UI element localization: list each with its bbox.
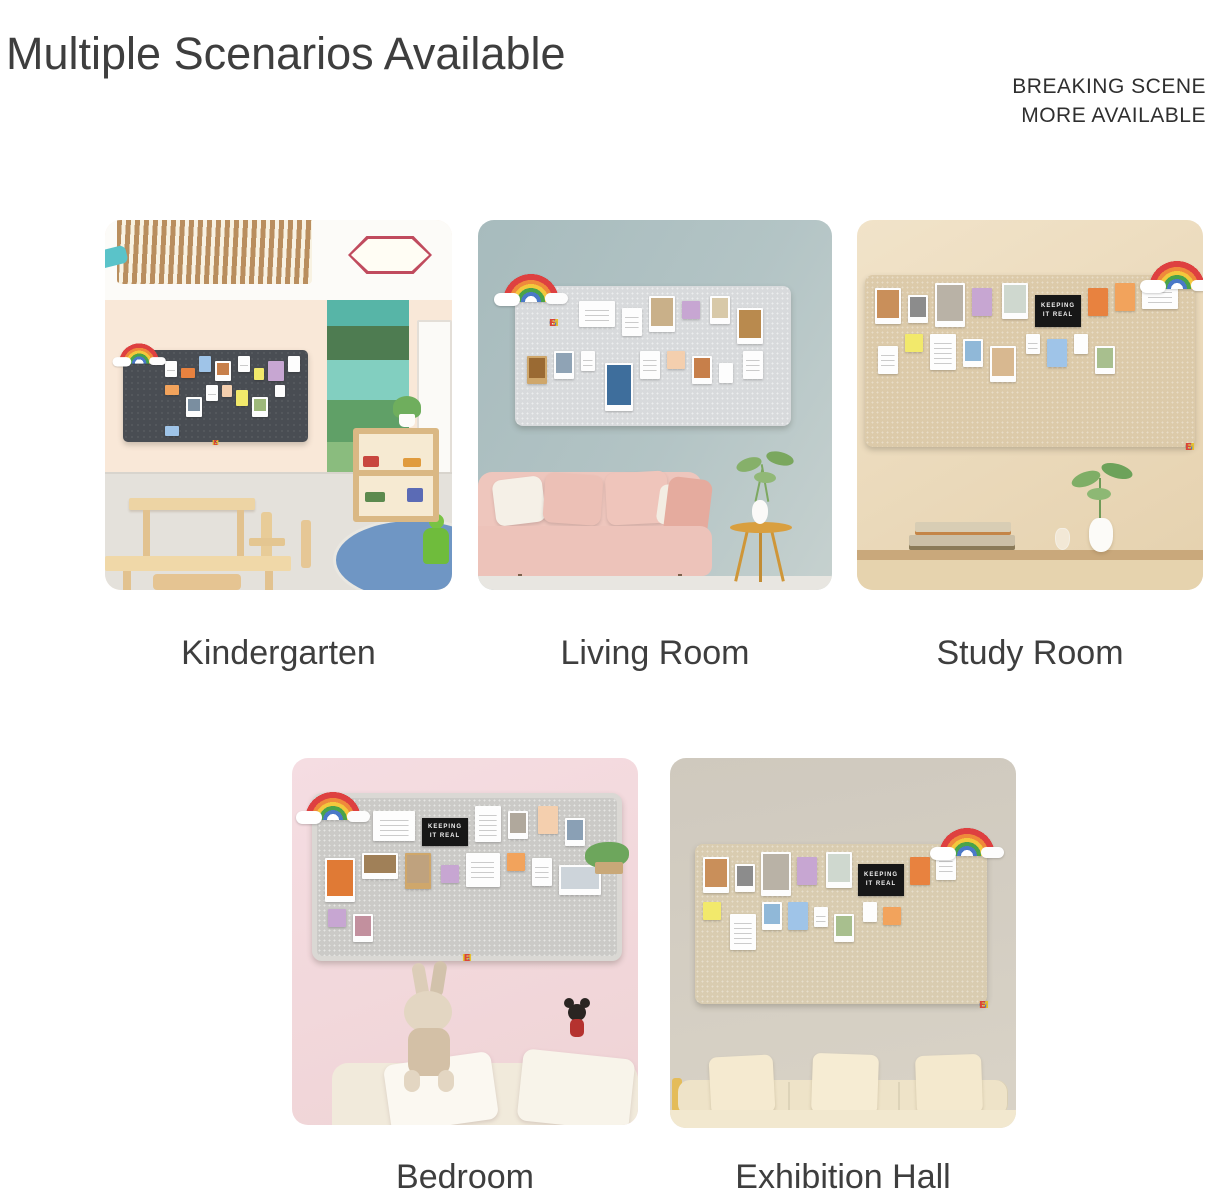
rainbow-icon [305,790,361,820]
pinned-card [990,346,1016,382]
pinned-card [288,356,300,372]
pinned-card [581,351,595,371]
table-leg [123,571,131,590]
home-letter: E [1185,442,1192,453]
pinned-card [238,356,250,372]
pinned-card [910,857,930,885]
pinned-card [703,857,729,893]
pinned-card [1026,334,1040,354]
pinned-card [215,361,231,381]
bunny-plush [438,1070,454,1092]
pinned-card [834,914,854,942]
toy-car-green [365,492,385,502]
plant-leaf [1087,488,1111,500]
pinned-card [206,385,218,401]
pinned-card [199,356,211,372]
pinned-card [930,334,956,370]
mouse-plush [570,1019,584,1037]
vase [1089,518,1113,552]
bunny-plush [404,991,452,1033]
availability-note: BREAKING SCENE MORE AVAILABLE [1012,72,1206,130]
pinned-card [275,385,285,397]
pinned-card [640,351,660,379]
pinned-card [972,288,992,316]
pinned-card [735,864,755,892]
scene-card-study-room: KEEPING IT REAL H O M E [857,220,1203,590]
pinned-card [883,907,901,925]
wood-slat-ceiling [117,220,312,284]
bunny-plush [404,1070,420,1092]
plant-pot [399,414,415,427]
bunny-plush [408,1028,450,1076]
plant-leaf [765,449,795,468]
home-letter: E [464,953,471,964]
pinned-card [1095,346,1115,374]
pinned-card [814,907,828,927]
pinned-card [236,390,248,406]
toy-shelf [353,428,439,522]
rainbow-icon [1149,259,1203,289]
home-letter: E [549,318,556,329]
kids-chair [153,574,241,590]
pinned-card [325,858,355,902]
pinned-card [165,385,179,395]
table-leg [759,532,762,582]
home-letter: E [979,1000,986,1011]
pinned-card [667,351,685,369]
table-leg [265,571,273,590]
pinned-card [353,914,373,942]
desk-top [857,550,1203,560]
pinned-card [826,852,852,888]
felt-pin-board: H O M E [123,350,308,442]
scene-label-living-room: Living Room [478,634,832,673]
pinned-card [328,909,346,927]
pinned-card [743,351,763,379]
pinned-card [554,351,574,379]
keeping-it-real-sign: KEEPING IT REAL [1035,295,1081,327]
pinned-cards-collage [515,286,791,426]
pinned-card [507,853,525,871]
pinned-card [1115,283,1135,311]
pinned-card [863,902,877,922]
sofa-seat [478,526,712,576]
bench-pillow [915,1054,983,1115]
scene-label-bedroom: Bedroom [292,1158,638,1197]
scene-label-exhibition-hall: Exhibition Hall [670,1158,1016,1197]
pinned-card [908,295,928,323]
kids-table [105,556,291,571]
pinned-card [878,346,898,374]
scene-label-study-room: Study Room [857,634,1203,673]
kids-chair [249,538,285,546]
felt-pin-board: H O M E [515,286,791,426]
book [915,522,1011,535]
product-scenarios-image: Multiple Scenarios Available BREAKING SC… [0,0,1225,1200]
scene-card-kindergarten: H O M E [105,220,452,590]
pinned-card [165,426,179,436]
pinned-card [1047,339,1067,367]
pinned-card [254,368,264,380]
bench-pillow [811,1053,879,1115]
toy-figure [423,528,449,564]
pinned-card [737,308,763,344]
pinned-card [222,385,232,397]
sofa-pillow [542,472,603,526]
pinned-card [441,865,459,883]
pinned-card [788,902,808,930]
scene-label-kindergarten: Kindergarten [105,634,452,673]
pinned-card [719,363,733,383]
pinned-card [165,361,177,377]
rainbow-icon [119,342,159,364]
pinned-card [362,853,398,879]
bench-seat [670,1110,1016,1128]
pinned-card [1002,283,1028,319]
pinned-card [1074,334,1088,354]
rainbow-icon [939,826,995,856]
toy-car-orange [403,458,421,467]
scene-card-living-room: H O M E [478,220,832,590]
pinned-card [532,858,552,886]
pinned-cards-collage: KEEPING IT REAL [865,275,1195,447]
pinned-card [475,806,501,842]
kids-table [129,498,255,510]
pinned-card [730,914,756,950]
toy-car-blue [407,488,423,502]
bed-pillow [517,1048,636,1125]
pinned-cards-collage: KEEPING IT REAL [695,844,987,1004]
scene-card-exhibition-hall: KEEPING IT REAL H O M E [670,758,1016,1128]
kids-chair [301,520,311,568]
rainbow-icon [503,272,559,302]
pinned-card [1088,288,1108,316]
desk-front [857,560,1203,590]
availability-note-line1: BREAKING SCENE [1012,72,1206,101]
pinned-card [963,339,983,367]
pinned-card [935,283,965,327]
pinned-card [565,818,585,846]
pinned-card [186,397,202,417]
plant-leaf [1100,460,1135,482]
felt-pin-board: KEEPING IT REAL H O M E [695,844,987,1004]
felt-pin-board: KEEPING IT REAL H O M E [865,275,1195,447]
pinned-card [682,301,700,319]
pinned-card [579,301,615,327]
page-title: Multiple Scenarios Available [6,28,566,80]
pinned-card [508,811,528,839]
pinned-card [373,811,415,841]
pinned-card [538,806,558,834]
availability-note-line2: MORE AVAILABLE [1012,101,1206,130]
pinned-card [762,902,782,930]
pinned-card [761,852,791,896]
keeping-it-real-sign: KEEPING IT REAL [858,864,904,896]
pinned-card [649,296,675,332]
pinned-card [692,356,712,384]
floor [478,576,832,590]
pinned-card [875,288,901,324]
pinned-card [905,334,923,352]
pinned-card [605,363,633,411]
pinned-card [252,397,268,417]
book [909,535,1015,550]
glass-decanter [1055,528,1070,550]
pinned-card [703,902,721,920]
vase [752,500,768,524]
pinned-card [710,296,730,324]
pinned-card [181,368,195,378]
plant-box [595,862,623,874]
pinned-card [622,308,642,336]
plant-leaf [754,471,777,484]
keeping-it-real-sign: KEEPING IT REAL [422,818,468,846]
bench-pillow [709,1054,776,1115]
pinned-card [797,857,817,885]
table-leg [770,530,785,581]
home-letter: E [213,439,218,447]
sofa-pillow [491,475,546,527]
scene-card-bedroom: KEEPING IT REAL H O M [292,758,638,1125]
pinned-card [405,853,431,889]
felt-pin-board: KEEPING IT REAL H O M [312,793,622,961]
table-leg [734,530,749,581]
pinned-card [268,361,284,381]
pinned-card [527,356,547,384]
pinned-card [466,853,500,887]
toy-car-red [363,456,379,467]
